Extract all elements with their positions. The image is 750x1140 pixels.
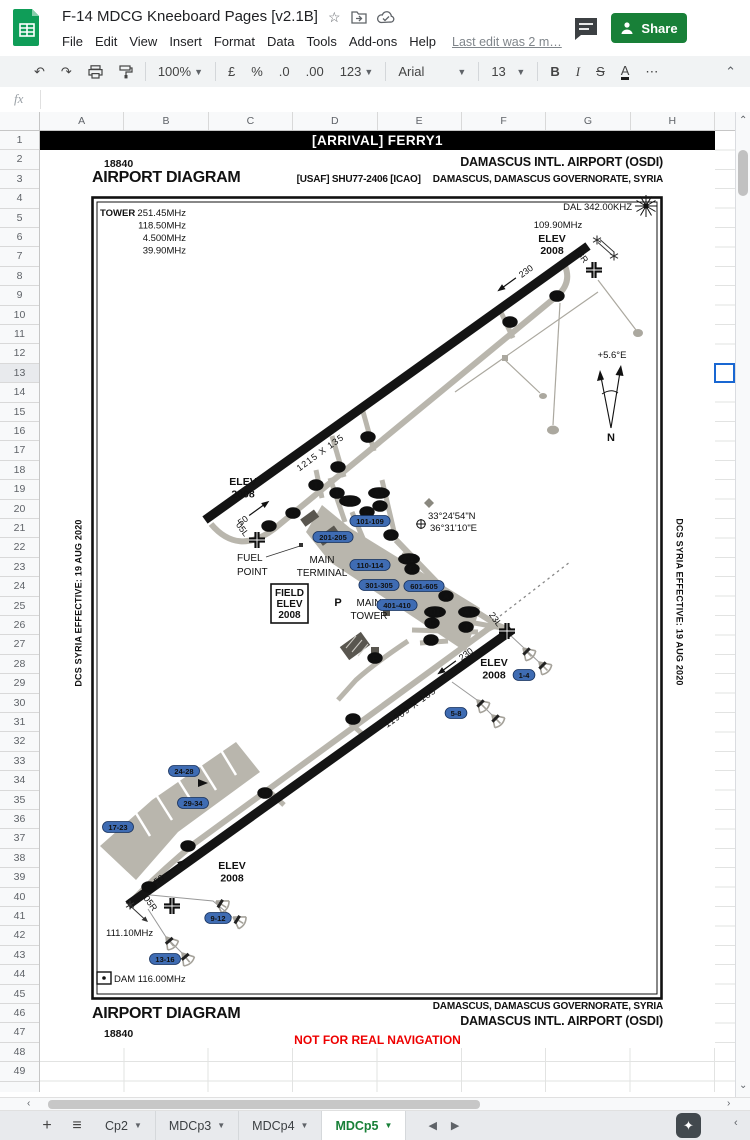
svg-text:I: I [352,715,354,724]
taxiway-label-K: K [180,840,195,852]
undo-button[interactable]: ↶ [26,64,53,80]
row-header-13[interactable]: 13 [0,364,39,383]
column-header-B[interactable]: B [124,112,208,130]
svg-text:TOWER: TOWER [350,611,387,622]
sheet-tab-MDCp3[interactable]: MDCp3▼ [156,1111,239,1140]
svg-text:118.50MHz: 118.50MHz [138,221,186,232]
row-header-5[interactable]: 5 [0,209,39,228]
airport-diagram-image[interactable]: [ARRIVAL] FERRY1 18840 AIRPORT DIAGRAM D… [40,131,715,1048]
redo-button[interactable]: ↷ [53,64,80,80]
svg-text:39.90MHz: 39.90MHz [143,246,187,257]
menu-insert[interactable]: Insert [163,31,208,52]
column-header-D[interactable]: D [293,112,377,130]
row-header-27[interactable]: 27 [0,635,39,654]
freq-111: 111.10MHz [106,928,153,939]
svg-text:4.500MHz: 4.500MHz [143,233,187,244]
zoom-select[interactable]: 100% ▼ [150,64,211,79]
svg-text:A: A [388,531,394,540]
north-label: N [607,432,615,444]
column-header-G[interactable]: G [546,112,630,130]
svg-text:201-205: 201-205 [319,533,347,542]
svg-text:24-28: 24-28 [174,767,193,776]
explore-button[interactable]: ✦ [676,1113,701,1138]
svg-text:1-4: 1-4 [519,671,531,680]
taxiway-label-R: R [360,431,375,443]
dal-beacon: DAL 342.00KHZ [563,202,632,213]
google-sheets-app: F-14 MDCG Kneeboard Pages [v2.1B] ☆ File… [0,0,750,1140]
scroll-up-icon[interactable]: ⌃ [739,115,747,126]
gate-label-24-28: 24-28 [169,766,200,777]
row-header-42[interactable]: 42 [0,926,39,945]
localizer-antenna-ne [593,236,618,261]
taxiway-label-A: A [438,590,453,602]
gate-label-201-205: 201-205 [313,532,353,543]
taxiway-label-S: S [330,461,345,473]
row-header-2[interactable]: 2 [0,150,39,169]
svg-text:G: G [146,883,152,892]
row-header-26[interactable]: 26 [0,616,39,635]
magnetic-variation: +5.6°E [598,350,627,361]
coordinates: 33°24'54"N 36°31'10"E [416,498,477,534]
svg-text:FUEL: FUEL [237,553,263,564]
toolbar: ↶ ↷ 100% ▼ £ % .0 .00 123▼ Arial▼ 13▼ B … [0,56,750,88]
column-header-C[interactable]: C [209,112,293,130]
dam-vor: DAM 116.00MHz [114,974,186,985]
row-header-1[interactable]: 1 [0,131,39,150]
collapse-toolbar-button[interactable]: ⌃ [717,64,750,80]
taxiway-label-C: C [404,563,419,575]
svg-text:ELEV: ELEV [218,860,245,872]
svg-text:2008: 2008 [231,489,255,501]
row-header-18[interactable]: 18 [0,461,39,480]
row-header-31[interactable]: 31 [0,713,39,732]
svg-text:A1: A1 [464,608,475,617]
bold-button[interactable]: B [542,64,567,79]
comment-icon[interactable] [572,16,600,42]
svg-text:ELEV: ELEV [276,599,302,610]
taxiway-label-D1: D1 [424,606,446,618]
gate-label-29-34: 29-34 [178,798,209,809]
gate-labels: 101-109201-205110-114301-305601-605401-4… [103,516,535,965]
freq-109: 109.90MHz [534,220,583,231]
svg-text:ELEV: ELEV [538,233,565,245]
footer-airport-name: DAMASCUS INTL. AIRPORT (OSDI) [460,1014,663,1028]
svg-text:D1: D1 [430,608,441,617]
paint-format-button[interactable] [111,65,141,79]
person-icon [620,21,634,35]
selected-cell-outline [714,363,735,383]
svg-text:N: N [377,502,383,511]
row-header-22[interactable]: 22 [0,538,39,557]
svg-text:2008: 2008 [220,873,244,885]
row-header-6[interactable]: 6 [0,228,39,247]
menu-format[interactable]: Format [208,31,261,52]
row-header-39[interactable]: 39 [0,868,39,887]
not-for-navigation-warning: NOT FOR REAL NAVIGATION [40,1033,715,1047]
menu-edit[interactable]: Edit [89,31,123,52]
svg-text:36°31'10"E: 36°31'10"E [430,523,477,534]
taxiway-label-B1: B1 [339,495,361,507]
taxiway-label-F: F [367,652,382,664]
row-header-40[interactable]: 40 [0,888,39,907]
menu-bar: FileEditViewInsertFormatDataToolsAdd-ons… [56,31,562,52]
font-size-select[interactable]: 13▼ [483,64,533,79]
svg-text:C: C [409,565,415,574]
taxiway-label-A1: A1 [368,487,390,499]
row-header-9[interactable]: 9 [0,286,39,305]
row-header-14[interactable]: 14 [0,383,39,402]
taxiway-label-Q: Q [502,316,517,328]
svg-text:17-23: 17-23 [108,823,127,832]
scroll-right-icon[interactable]: › [727,1098,730,1109]
airport-map: +5.6°E N 33°24'54"N 36°31'10"E TOWER 251… [40,131,715,1048]
tab-scroll-right-icon[interactable]: ▶ [451,1119,459,1132]
taxiway-label-H: H [257,787,272,799]
column-headers: ABCDEFGH [40,112,735,131]
row-header-3[interactable]: 3 [0,170,39,189]
svg-text:33°24'54"N: 33°24'54"N [428,511,476,522]
row-header-30[interactable]: 30 [0,694,39,713]
svg-text:I: I [336,489,338,498]
north-indicator: +5.6°E N [597,350,626,444]
taxiway-label-J: J [458,621,473,633]
format-currency-button[interactable]: £ [220,64,243,79]
sheet-tab-MDCp4[interactable]: MDCp4▼ [239,1111,322,1140]
gate-label-110-114: 110-114 [350,560,390,571]
row-header-10[interactable]: 10 [0,306,39,325]
row-header-19[interactable]: 19 [0,480,39,499]
footer-diagram-title: AIRPORT DIAGRAM [92,1005,240,1023]
taxiway-label-A1: A1 [458,606,480,618]
row-header-32[interactable]: 32 [0,732,39,751]
sheet-tab-Cp2[interactable]: Cp2▼ [92,1111,156,1140]
row-header-12[interactable]: 12 [0,344,39,363]
row-header-48[interactable]: 48 [0,1043,39,1062]
svg-text:MAIN: MAIN [310,555,335,566]
svg-text:B1: B1 [345,497,356,506]
svg-text:POINT: POINT [237,567,268,578]
taxiway-label-A: A [383,529,398,541]
row-header-21[interactable]: 21 [0,519,39,538]
row-header-29[interactable]: 29 [0,674,39,693]
more-formats-button[interactable]: 123▼ [332,64,382,79]
share-button[interactable]: Share [611,13,687,43]
svg-text:9-12: 9-12 [210,914,225,923]
document-title[interactable]: F-14 MDCG Kneeboard Pages [v2.1B] [62,8,318,25]
menu-file[interactable]: File [56,31,89,52]
svg-text:ELEV: ELEV [229,476,256,488]
svg-text:K: K [428,636,434,645]
runway-05l-23r [205,246,588,520]
taxiway-label-T: T [308,479,323,491]
strikethrough-button[interactable]: S [588,64,613,79]
svg-text:J: J [464,623,468,632]
row-header-35[interactable]: 35 [0,791,39,810]
add-sheet-button[interactable]: + [32,1111,62,1140]
menu-help[interactable]: Help [403,31,442,52]
gate-label-9-12: 9-12 [205,913,231,924]
row-header-28[interactable]: 28 [0,655,39,674]
menu-data[interactable]: Data [261,31,300,52]
vor-symbol [97,972,111,984]
svg-text:05L: 05L [234,520,251,538]
sheets-logo[interactable] [13,9,41,46]
svg-text:S: S [335,463,341,472]
svg-text:301-305: 301-305 [365,581,393,590]
taxiway-label-O: O [549,290,564,302]
runway-lower-dim: 11909 X 185 [382,685,438,729]
taxiway-label-C1: C1 [398,553,420,565]
all-sheets-button[interactable]: ≡ [62,1111,92,1140]
taxiway-label-O: O [285,507,300,519]
row-header-33[interactable]: 33 [0,752,39,771]
row-header-34[interactable]: 34 [0,771,39,790]
gate-label-13-16: 13-16 [150,954,181,965]
font-select[interactable]: Arial▼ [390,64,474,79]
row-header-47[interactable]: 47 [0,1023,39,1042]
column-header-E[interactable]: E [378,112,462,130]
share-label: Share [641,21,677,36]
sheet-tab-MDCp5[interactable]: MDCp5▼ [322,1111,406,1140]
taxiway-label-G: G [141,881,156,893]
svg-text:O: O [290,509,296,518]
hide-tabbar-icon[interactable]: ‹ [734,1117,738,1129]
row-header-4[interactable]: 4 [0,189,39,208]
increase-decimal-button[interactable]: .00 [298,64,332,79]
svg-text:A: A [443,592,449,601]
taxiway-label-K: K [423,634,438,646]
svg-text:2008: 2008 [278,610,301,621]
row-header-38[interactable]: 38 [0,849,39,868]
svg-text:U: U [266,522,272,531]
row-header-23[interactable]: 23 [0,558,39,577]
row-header-7[interactable]: 7 [0,247,39,266]
fx-label: fx [14,91,23,107]
parking-label: P [334,597,341,609]
last-edit-status[interactable]: Last edit was 2 m… [452,35,562,49]
row-header-8[interactable]: 8 [0,267,39,286]
taxiway-label-N: N [372,500,387,512]
footer-location: DAMASCUS, DAMASCUS GOVERNORATE, SYRIA [433,1001,663,1012]
star-icon[interactable]: ☆ [328,10,341,24]
svg-text:230: 230 [517,263,535,280]
svg-text:O: O [554,292,560,301]
taxiway-label-U: U [261,520,276,532]
gate-label-301-305: 301-305 [359,580,399,591]
svg-text:TERMINAL: TERMINAL [297,568,348,579]
row-header-41[interactable]: 41 [0,907,39,926]
titlebar: F-14 MDCG Kneeboard Pages [v2.1B] ☆ File… [0,0,750,56]
select-all-corner[interactable] [0,112,40,131]
tab-scroll-left-icon[interactable]: ◀ [428,1119,436,1132]
taxiway-label-E: E [424,617,439,629]
svg-text:601-605: 601-605 [410,582,438,591]
row-header-45[interactable]: 45 [0,985,39,1004]
scroll-left-icon[interactable]: ‹ [27,1098,30,1109]
svg-text:E: E [429,619,435,628]
svg-text:5-8: 5-8 [451,709,462,718]
text-color-button[interactable]: A [613,64,638,80]
print-button[interactable] [80,65,111,79]
row-header-20[interactable]: 20 [0,500,39,519]
svg-text:FIELD: FIELD [275,588,304,599]
svg-text:F: F [373,654,378,663]
row-header-37[interactable]: 37 [0,829,39,848]
italic-button[interactable]: I [568,64,588,80]
horizontal-scroll-thumb[interactable] [48,1100,480,1109]
more-toolbar-button[interactable]: ⋯ [637,64,666,80]
column-header-A[interactable]: A [40,112,124,130]
gate-label-401-410: 401-410 [377,600,417,611]
column-header-F[interactable]: F [462,112,546,130]
formula-bar[interactable]: fx [0,87,750,113]
menu-tools[interactable]: Tools [300,31,342,52]
horizontal-scrollbar[interactable]: ‹ › [0,1097,750,1111]
decrease-decimal-button[interactable]: .0 [271,64,298,79]
svg-text:2008: 2008 [540,245,564,257]
cloud-status-icon[interactable] [377,10,395,24]
svg-text:101-109: 101-109 [356,517,384,526]
svg-text:H: H [262,789,268,798]
vertical-scroll-thumb[interactable] [738,150,748,196]
svg-text:29-34: 29-34 [183,799,203,808]
gate-label-1-4: 1-4 [513,670,535,681]
row-header-36[interactable]: 36 [0,810,39,829]
svg-text:401-410: 401-410 [383,601,411,610]
row-header-25[interactable]: 25 [0,597,39,616]
menu-add-ons[interactable]: Add-ons [343,31,403,52]
gate-label-17-23: 17-23 [103,822,134,833]
row-header-43[interactable]: 43 [0,946,39,965]
svg-text:ELEV: ELEV [480,657,507,669]
svg-text:A1: A1 [374,489,385,498]
move-folder-icon[interactable] [351,10,367,24]
field-elevation-box: FIELD ELEV 2008 [271,584,308,623]
svg-text:K: K [185,842,191,851]
row-header-17[interactable]: 17 [0,441,39,460]
svg-text:T: T [314,481,319,490]
gate-label-601-605: 601-605 [404,581,444,592]
svg-text:05R: 05R [142,894,160,914]
column-header-H[interactable]: H [631,112,715,130]
taxiway-label-I: I [345,713,360,725]
format-percent-button[interactable]: % [243,64,271,79]
svg-text:251.45MHz: 251.45MHz [137,208,186,219]
row-headers: 1234567891011121314151617181920212223242… [0,131,40,1092]
menu-view[interactable]: View [123,31,163,52]
row-header-16[interactable]: 16 [0,422,39,441]
row-header-15[interactable]: 15 [0,403,39,422]
svg-text:13-16: 13-16 [155,955,174,964]
vertical-scrollbar[interactable]: ⌃ ⌄ [735,112,750,1097]
row-header-49[interactable]: 49 [0,1062,39,1081]
row-header-24[interactable]: 24 [0,577,39,596]
gate-label-5-8: 5-8 [445,708,467,719]
svg-text:C1: C1 [404,555,415,564]
sheet-tab-bar: + ≡ Cp2▼MDCp3▼MDCp4▼MDCp5▼ ◀ ▶ ✦ ‹ [0,1111,750,1140]
gate-label-101-109: 101-109 [350,516,390,527]
row-header-11[interactable]: 11 [0,325,39,344]
svg-text:TOWER: TOWER [100,208,135,219]
svg-text:110-114: 110-114 [357,561,385,570]
row-header-46[interactable]: 46 [0,1004,39,1023]
tower-frequencies: TOWER 251.45MHz 118.50MHz 4.500MHz 39.90… [100,208,186,257]
row-header-44[interactable]: 44 [0,965,39,984]
svg-text:2008: 2008 [482,670,506,682]
scroll-down-icon[interactable]: ⌄ [739,1080,747,1091]
svg-text:R: R [365,433,371,442]
svg-text:Q: Q [507,318,513,327]
